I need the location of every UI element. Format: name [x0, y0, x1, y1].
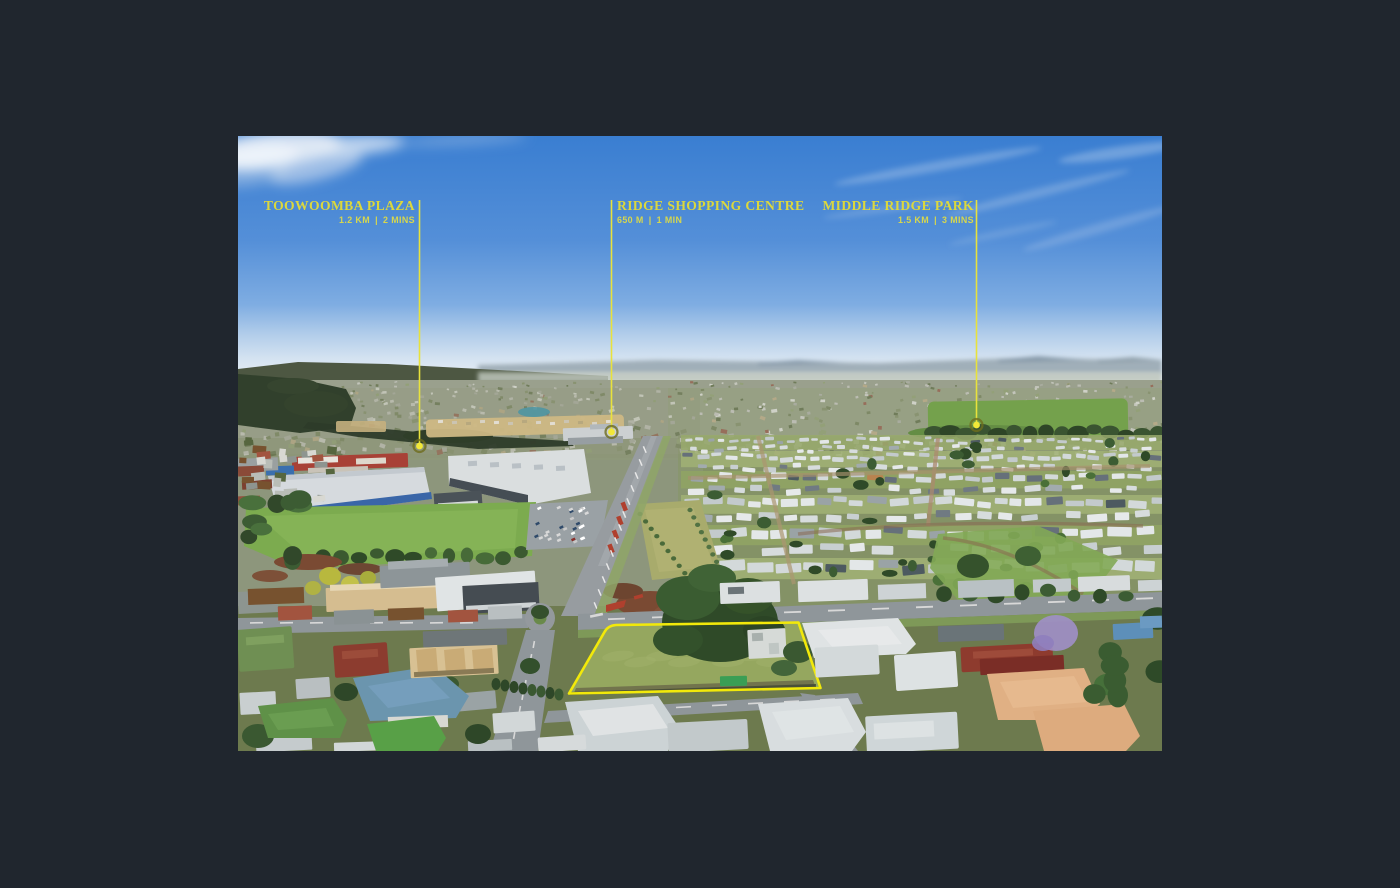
svg-text:1.5 KM | 3 MINS: 1.5 KM | 3 MINS — [898, 215, 974, 225]
svg-text:1.2 KM | 2 MINS: 1.2 KM | 2 MINS — [339, 215, 415, 225]
svg-text:TOOWOOMBA PLAZA: TOOWOOMBA PLAZA — [264, 198, 415, 213]
svg-text:RIDGE SHOPPING CENTRE: RIDGE SHOPPING CENTRE — [617, 198, 804, 213]
svg-text:650 M | 1 MIN: 650 M | 1 MIN — [617, 215, 682, 225]
svg-text:MIDDLE RIDGE PARK: MIDDLE RIDGE PARK — [822, 198, 974, 213]
